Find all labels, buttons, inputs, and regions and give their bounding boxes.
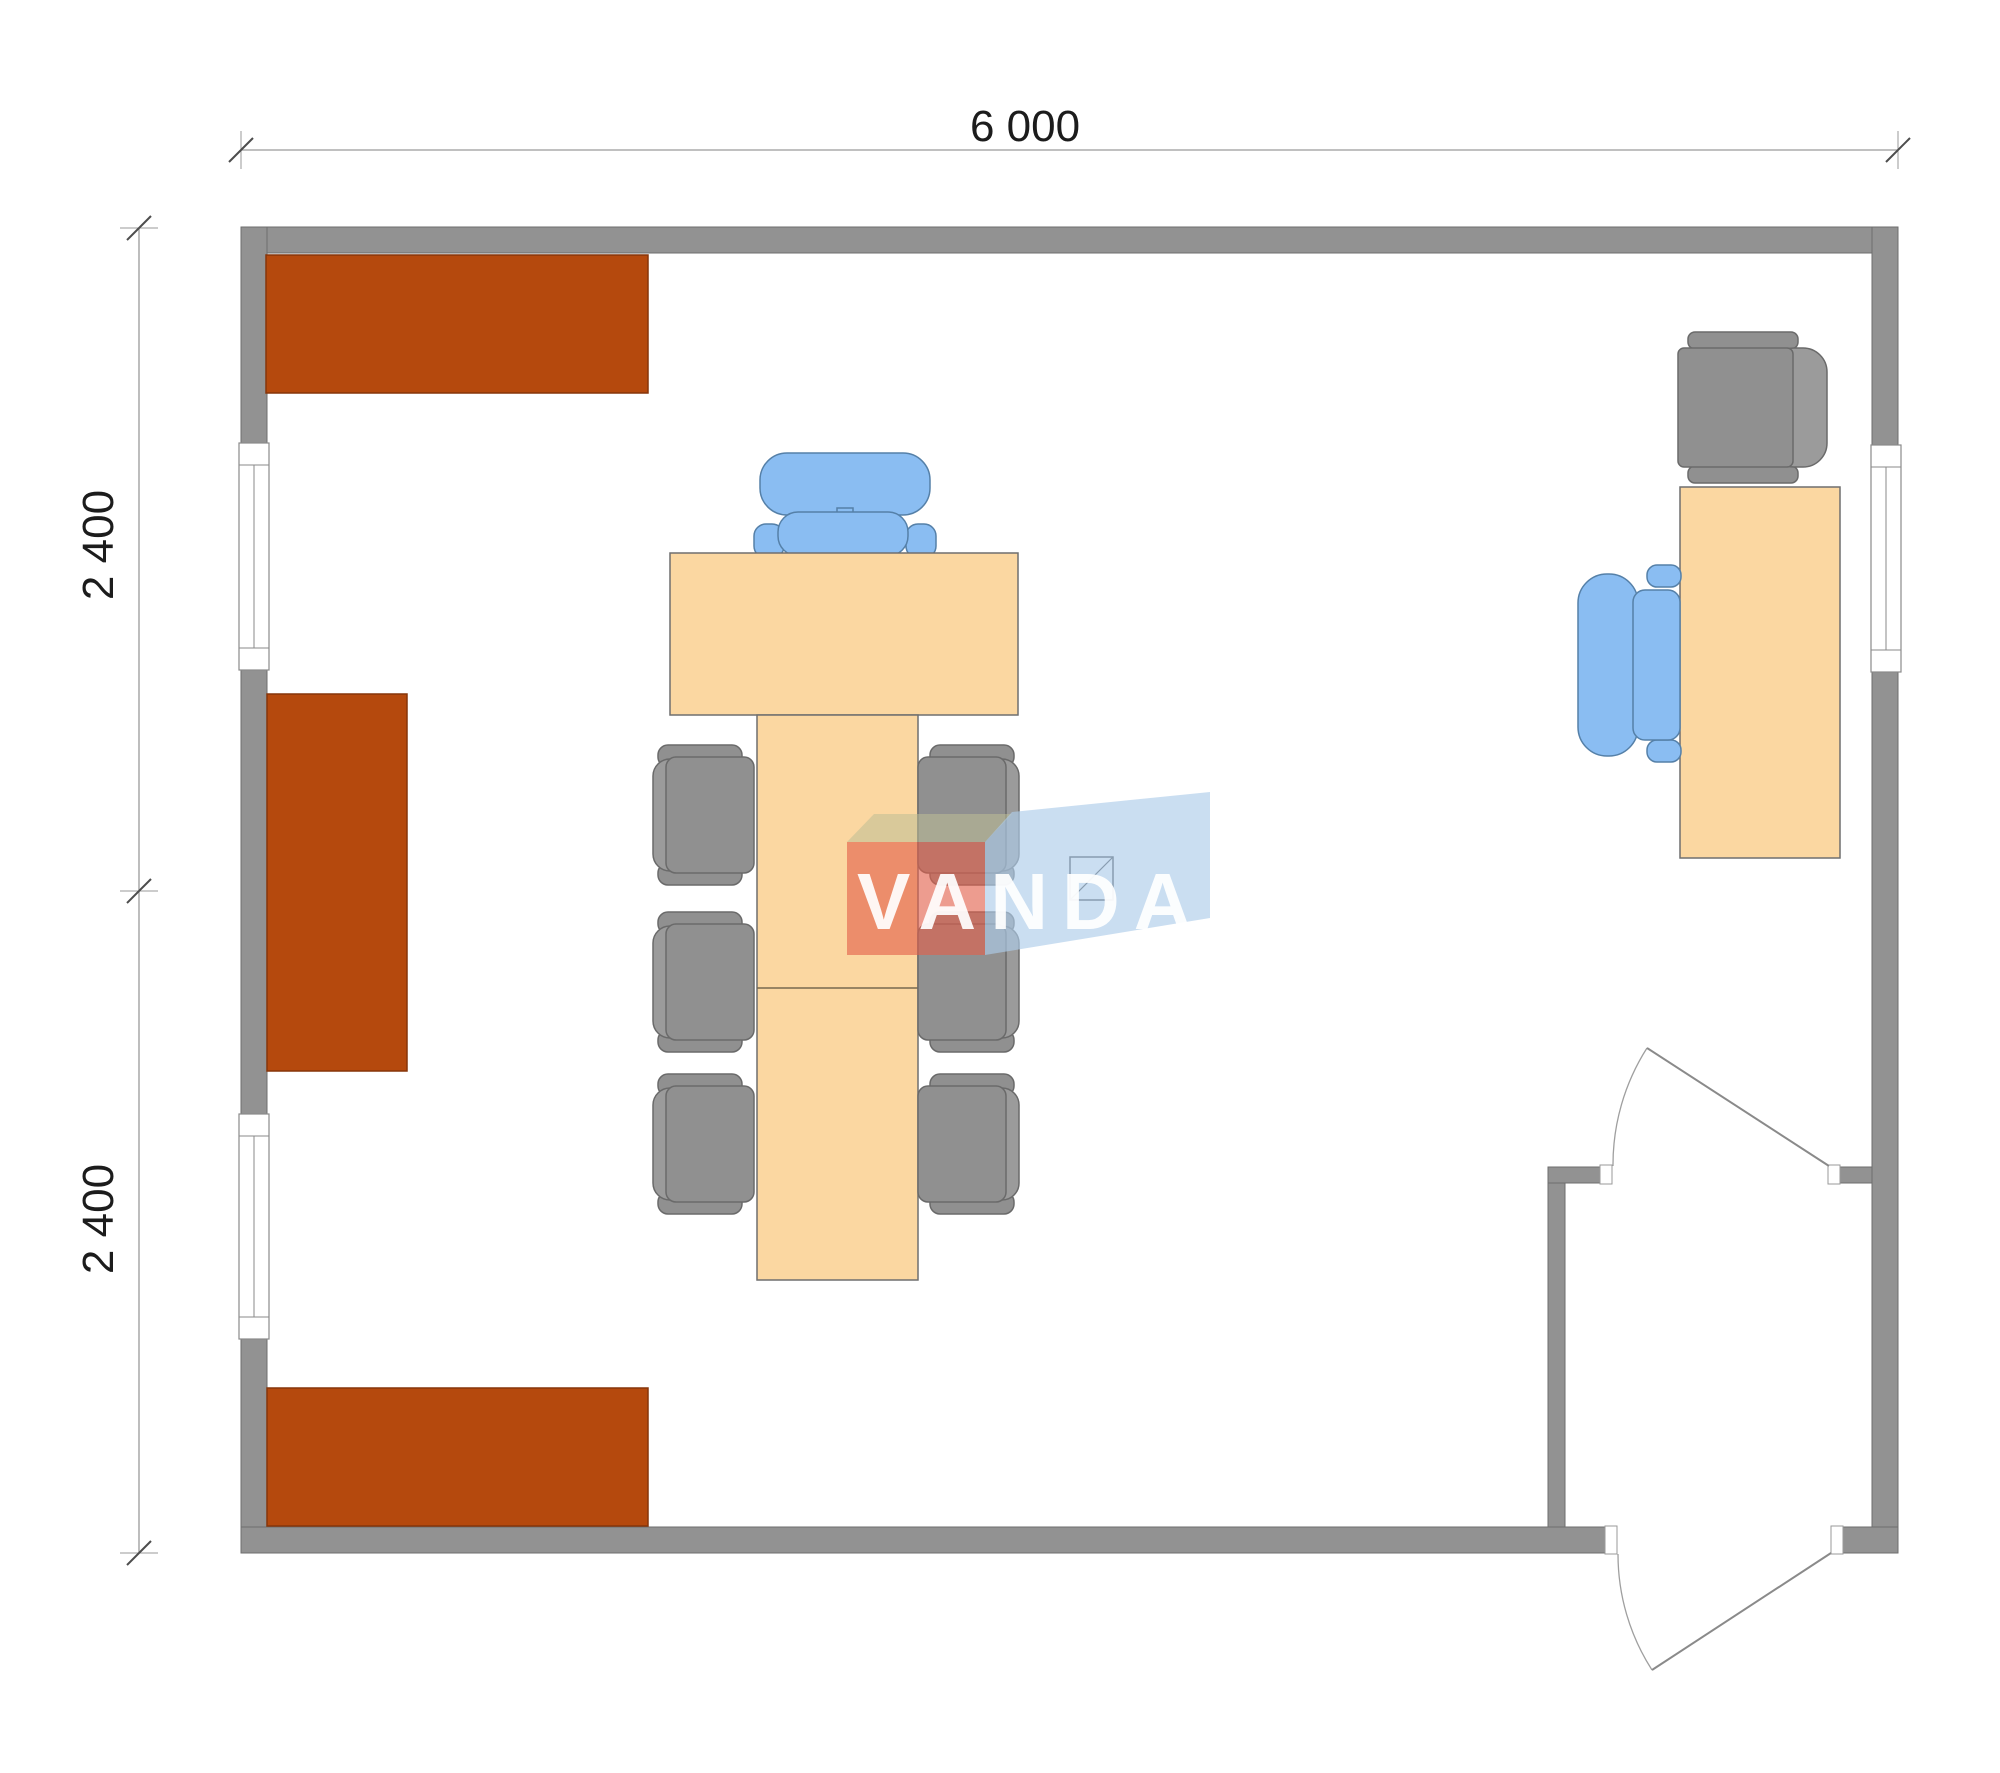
window-left-lower xyxy=(239,1114,269,1339)
wall-left-seg2 xyxy=(241,670,267,1114)
visitor-chair-left-3 xyxy=(653,1074,754,1214)
wall-cabinet-left xyxy=(267,694,407,1071)
dimension-left: 2 400 2 400 xyxy=(74,216,158,1565)
doors xyxy=(1600,1048,1843,1670)
door-swing-arc xyxy=(1618,1554,1652,1670)
visitor-chair-left-1 xyxy=(653,745,754,885)
dimension-top: 6 000 xyxy=(229,102,1910,169)
floor-plan-canvas: 6 000 2 400 2 400 xyxy=(0,0,2000,1773)
vestibule-wall-stub-left xyxy=(1548,1167,1600,1183)
dimension-label-width: 6 000 xyxy=(970,102,1080,151)
door-jamb xyxy=(1828,1165,1840,1184)
door-jamb xyxy=(1605,1526,1617,1554)
door-leaf xyxy=(1647,1048,1829,1166)
chair-seat xyxy=(666,1086,754,1202)
window-right xyxy=(1871,445,1901,672)
chair-seat xyxy=(918,1086,1006,1202)
dimension-label-left-upper: 2 400 xyxy=(74,490,123,600)
chair-armrest xyxy=(1647,565,1681,587)
chair-backrest xyxy=(1578,574,1638,756)
chair-armrest xyxy=(1688,466,1798,483)
chair-seat xyxy=(666,924,754,1040)
watermark-top-face xyxy=(847,814,1012,842)
wall-left-seg3 xyxy=(241,1339,267,1553)
office-desk xyxy=(1680,487,1840,858)
vestibule-wall-stub-right xyxy=(1840,1167,1872,1183)
wall-right-seg2 xyxy=(1872,672,1898,1553)
vestibule-inner-door xyxy=(1600,1048,1840,1184)
chair-seat xyxy=(1678,348,1793,467)
watermark-text: VANDA xyxy=(857,857,1206,946)
desk-chair-blue xyxy=(1578,565,1681,762)
floor-plan-drawing: 6 000 2 400 2 400 xyxy=(0,0,2000,1773)
chair-seat xyxy=(1633,590,1680,740)
wall-top xyxy=(241,227,1898,253)
conference-table-head xyxy=(670,553,1018,715)
desk-area xyxy=(1578,332,1840,858)
chair-backrest xyxy=(778,512,908,556)
executive-chair xyxy=(754,453,936,558)
dimension-label-left-lower: 2 400 xyxy=(74,1164,123,1274)
vestibule-exterior-door xyxy=(1605,1526,1843,1670)
wall-cabinet-bottom xyxy=(267,1388,648,1526)
wall-cabinet-top xyxy=(266,255,648,393)
visitor-chair-right-3 xyxy=(918,1074,1019,1214)
chair-headrest xyxy=(760,453,930,515)
watermark-logo: VANDA xyxy=(847,792,1210,955)
wall-bottom-left xyxy=(241,1527,1605,1553)
chair-armrest xyxy=(1688,332,1798,349)
wall-bottom-right xyxy=(1843,1527,1898,1553)
door-swing-arc xyxy=(1613,1048,1647,1166)
door-leaf xyxy=(1652,1553,1831,1670)
chair-seat xyxy=(666,757,754,873)
conference-table-body xyxy=(757,715,918,1280)
window-left-upper xyxy=(239,443,269,670)
door-jamb xyxy=(1831,1526,1843,1554)
armchair-gray xyxy=(1678,332,1827,483)
door-jamb xyxy=(1600,1165,1612,1184)
wall-right-seg1 xyxy=(1872,227,1898,445)
cabinets xyxy=(266,255,648,1526)
wall-left-seg1 xyxy=(241,227,267,443)
chair-armrest xyxy=(1647,740,1681,762)
vestibule-wall-vertical xyxy=(1548,1167,1565,1527)
visitor-chair-left-2 xyxy=(653,912,754,1052)
